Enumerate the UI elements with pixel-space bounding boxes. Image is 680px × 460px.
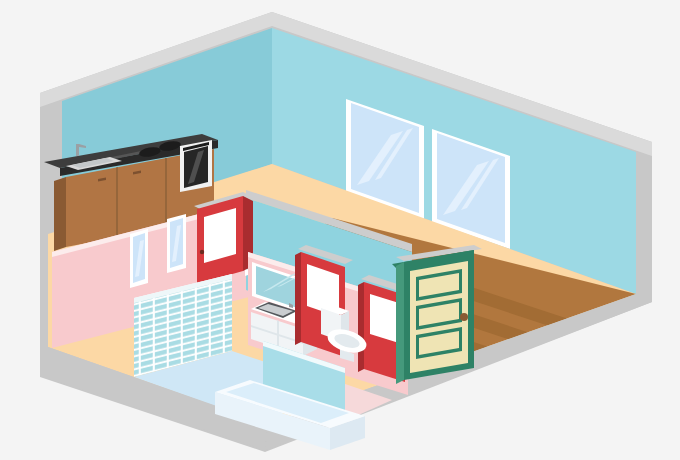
cabinet-seam <box>165 158 167 228</box>
frame-side <box>396 262 404 384</box>
illustration-stage <box>0 0 680 460</box>
apartment-illustration <box>0 0 680 460</box>
vanity-seam <box>277 320 279 349</box>
door-knob <box>460 313 468 321</box>
door-side <box>358 282 364 372</box>
door-side <box>295 252 301 345</box>
faucet <box>76 144 79 156</box>
cabinet-side <box>54 177 66 251</box>
green-entry-door <box>392 245 482 384</box>
door-window-panel <box>204 208 236 263</box>
interior-window-1 <box>130 229 148 288</box>
interior-window-2 <box>167 214 186 273</box>
oven <box>180 140 212 192</box>
door-knob <box>200 250 204 254</box>
cabinet-seam <box>116 167 118 238</box>
red-door-1 <box>194 192 253 284</box>
